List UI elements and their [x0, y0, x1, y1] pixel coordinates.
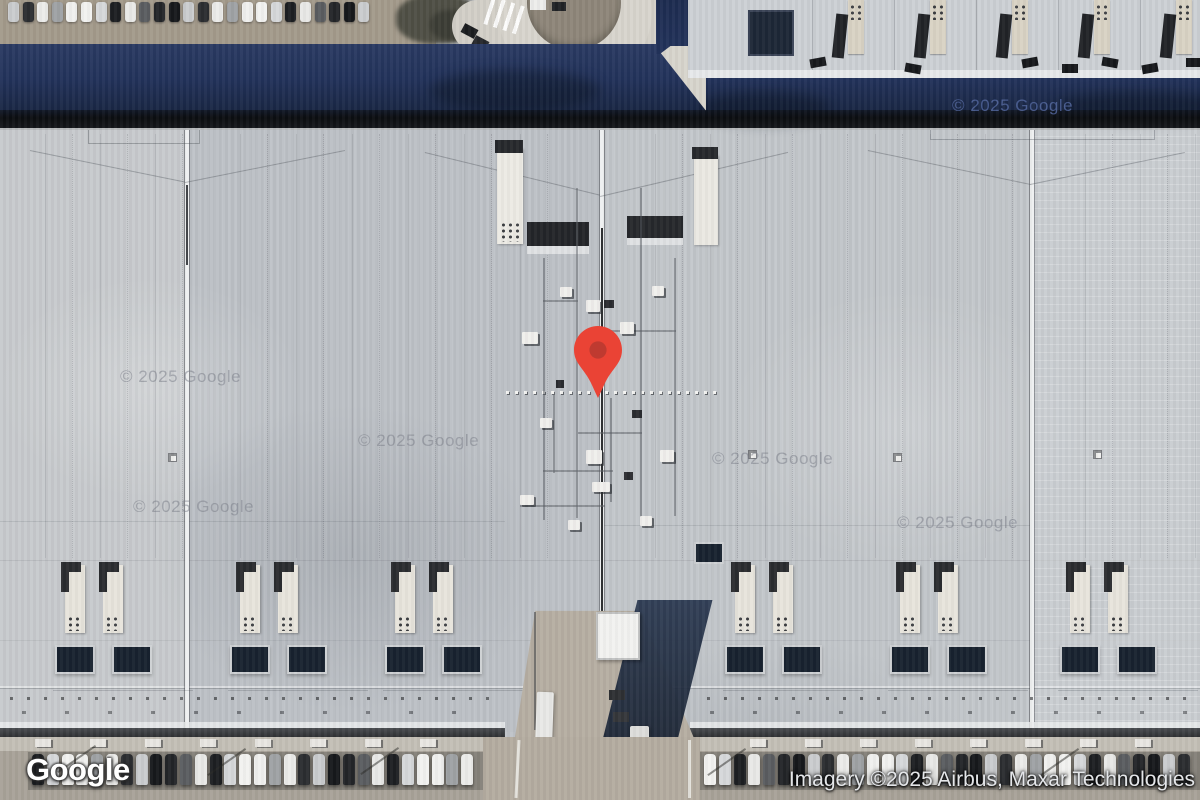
roof-speck [163, 697, 166, 700]
roof-detail [601, 228, 603, 624]
roof-detail [627, 238, 683, 245]
parked-car [110, 2, 121, 22]
roof-seam-dotted [1112, 134, 1113, 558]
vent-grate [1177, 4, 1191, 20]
parked-car [96, 2, 107, 22]
roof-dot [632, 391, 635, 394]
roof-dot [668, 391, 671, 394]
parked-car [242, 2, 253, 22]
vent-grate [1072, 616, 1088, 631]
roof-detail [820, 134, 821, 558]
parked-truck [1062, 64, 1078, 73]
roof-detail [296, 134, 297, 558]
roof-detail [543, 300, 578, 302]
roof-dot [551, 391, 554, 394]
roof-speck [1054, 711, 1058, 714]
roof-seam-dotted [792, 134, 793, 558]
roof-dot [533, 391, 536, 394]
roof-dot [659, 391, 662, 394]
roof-speck [1140, 711, 1144, 714]
roof-seam-dotted [547, 134, 548, 558]
vent-cap [495, 140, 523, 153]
vent-grate [940, 616, 956, 631]
vent-cap [61, 562, 69, 592]
parked-car [446, 754, 458, 785]
walkway-fixture [1025, 739, 1041, 747]
skylight-panel [694, 542, 724, 564]
parked-car [154, 2, 165, 22]
vent-grate [1095, 4, 1109, 20]
roof-seam-dotted [127, 134, 128, 558]
rooftop-equipment [586, 450, 602, 464]
vehicle [613, 712, 629, 722]
roof-detail [894, 0, 895, 70]
roof-speck [452, 697, 455, 700]
parked-car [343, 754, 355, 785]
vent-cap [769, 562, 777, 592]
roof-speck [1097, 711, 1101, 714]
roof-detail [632, 410, 642, 418]
roof-hatch [1093, 450, 1102, 459]
parked-car [358, 2, 369, 22]
vent-cap [429, 562, 437, 592]
roof-speck [237, 711, 241, 714]
parked-car [23, 2, 34, 22]
google-logo[interactable]: Google [26, 752, 130, 788]
roof-dot [686, 391, 689, 394]
parked-car [227, 2, 238, 22]
roof-dot [677, 391, 680, 394]
roof-detail [655, 134, 656, 558]
roof-detail [155, 134, 156, 558]
walkway-fixture [420, 739, 436, 747]
roof-detail [765, 134, 766, 558]
parked-truck [1186, 58, 1200, 67]
roof-detail [875, 134, 876, 558]
roof-seam-dotted [1012, 134, 1013, 558]
vent-grate [105, 616, 121, 631]
roof-speck [860, 697, 863, 700]
roof-detail [1058, 0, 1059, 70]
map-pin-icon[interactable] [574, 326, 622, 398]
vent-cap [1066, 562, 1074, 592]
roof-speck [61, 697, 64, 700]
parked-car [169, 2, 180, 22]
roof-speck [401, 697, 404, 700]
roof-dot [713, 391, 716, 394]
parked-car [139, 2, 150, 22]
roof-detail [976, 0, 977, 70]
roof-speck [418, 697, 421, 700]
vent-grate [397, 616, 413, 631]
roof-speck [409, 711, 413, 714]
roof-speck [112, 697, 115, 700]
parked-car [387, 754, 399, 785]
roof-speck [1030, 697, 1033, 700]
roof-dot [623, 391, 626, 394]
roof-seam-dotted [267, 134, 268, 558]
roof-detail [600, 525, 1031, 526]
roof-detail [610, 398, 612, 502]
parked-car [269, 754, 281, 785]
walkway-fixture [1080, 739, 1096, 747]
roof-detail [383, 690, 523, 691]
vent-cap [391, 562, 399, 592]
skylight-panel [287, 645, 327, 674]
roof-seam-dotted [491, 134, 492, 558]
roof-speck [925, 711, 929, 714]
parked-car [198, 2, 209, 22]
parked-car [81, 2, 92, 22]
roof-speck [108, 711, 112, 714]
roof-detail [527, 246, 589, 254]
roof-speck [968, 711, 972, 714]
roof-detail [464, 134, 465, 558]
satellite-imagery-layer: © 2025 Google© 2025 Google© 2025 Google©… [0, 0, 1200, 800]
roof-dot [560, 391, 563, 394]
vehicle [609, 690, 625, 700]
skylight-panel [1117, 645, 1157, 674]
roof-seam-dotted [847, 134, 848, 558]
roof-speck [979, 697, 982, 700]
roof-seam-dotted [957, 134, 958, 558]
walkway-fixture [145, 739, 161, 747]
parked-car [461, 754, 473, 785]
roof-speck [1013, 697, 1016, 700]
skylight-panel [725, 645, 765, 674]
roof-speck [280, 711, 284, 714]
roof-seam-dotted [737, 134, 738, 558]
roof-speck [843, 697, 846, 700]
skylight-panel [55, 645, 95, 674]
roof-speck [996, 697, 999, 700]
vent-cap [934, 562, 942, 592]
roof-detail [408, 134, 409, 558]
roof-dot [650, 391, 653, 394]
parked-car [432, 754, 444, 785]
roof-speck [724, 697, 727, 700]
vent-cap [236, 562, 244, 592]
roof-dot [524, 391, 527, 394]
walkway-fixture [1135, 739, 1151, 747]
rooftop-equipment [592, 482, 610, 492]
vent-grate [67, 616, 83, 631]
roof-detail [624, 472, 633, 480]
roof-dot [695, 391, 698, 394]
roof-speck [486, 697, 489, 700]
roof-seam-dotted [682, 134, 683, 558]
rooftop-opening [748, 10, 794, 56]
roof-seam-dotted [379, 134, 380, 558]
roof-seam-dotted [902, 134, 903, 558]
parked-car [284, 754, 296, 785]
vent-grate [500, 222, 520, 242]
walkway-fixture [970, 739, 986, 747]
roof-speck [44, 697, 47, 700]
skylight-panel [442, 645, 482, 674]
parked-car [298, 754, 310, 785]
roof-speck [1183, 711, 1187, 714]
parked-car [271, 2, 282, 22]
roof-speck [384, 697, 387, 700]
parked-car [136, 754, 148, 785]
roof-speck [962, 697, 965, 700]
roof-detail [1195, 134, 1196, 558]
vent-grate [737, 616, 753, 631]
parked-car [52, 2, 63, 22]
parked-car [300, 2, 311, 22]
roof-detail [228, 690, 368, 691]
roof-detail [186, 185, 188, 265]
vehicle [552, 2, 566, 11]
roof-speck [248, 697, 251, 700]
dock-trailer [527, 222, 589, 246]
roof-speck [1081, 697, 1084, 700]
vent-cap [731, 562, 739, 592]
roof-speck [78, 697, 81, 700]
roof-seam-dotted [1167, 134, 1168, 558]
roof-speck [928, 697, 931, 700]
roof-speck [10, 697, 13, 700]
roof-detail [985, 134, 986, 558]
roof-seam-dotted [182, 134, 183, 558]
roof-detail [0, 110, 1200, 130]
skylight-panel [112, 645, 152, 674]
parked-car [285, 2, 296, 22]
roof-speck [792, 697, 795, 700]
roof-detail [556, 380, 564, 388]
parked-car [402, 754, 414, 785]
vent-grate [775, 616, 791, 631]
skylight-panel [385, 645, 425, 674]
roof-speck [809, 697, 812, 700]
roof-speck [796, 711, 800, 714]
roof-speck [197, 697, 200, 700]
roof-speck [333, 697, 336, 700]
parked-car [328, 754, 340, 785]
skylight-panel [890, 645, 930, 674]
rooftop-vent [694, 155, 718, 245]
parked-car [734, 754, 746, 785]
parked-car [212, 2, 223, 22]
roof-detail [1085, 134, 1086, 558]
roof-speck [1183, 697, 1186, 700]
roof-detail [0, 128, 1200, 130]
roof-speck [316, 697, 319, 700]
roof-speck [435, 697, 438, 700]
parked-car [8, 2, 19, 22]
roof-speck [367, 697, 370, 700]
parked-car [180, 754, 192, 785]
roof-speck [1064, 697, 1067, 700]
skylight-panel [782, 645, 822, 674]
vent-grate [1013, 4, 1027, 20]
roof-speck [214, 697, 217, 700]
walkway-fixture [860, 739, 876, 747]
roof-speck [95, 697, 98, 700]
roof-speck [775, 697, 778, 700]
walkway-fixture [255, 739, 271, 747]
roof-detail [543, 258, 545, 520]
rooftop-equipment [652, 286, 664, 296]
walkway-fixture [365, 739, 381, 747]
roof-speck [146, 697, 149, 700]
dock-trailer [627, 216, 683, 238]
walkway-fixture [35, 739, 51, 747]
parked-car [315, 2, 326, 22]
parked-car [313, 754, 325, 785]
parked-car [329, 2, 340, 22]
roof-speck [323, 711, 327, 714]
roof-speck [877, 697, 880, 700]
roof-speck [22, 711, 26, 714]
parked-car [150, 754, 162, 785]
rooftop-equipment [540, 418, 552, 428]
imagery-attribution: Imagery ©2025 Airbus, Maxar Technologies [789, 768, 1195, 792]
roof-speck [1047, 697, 1050, 700]
roof-detail [45, 134, 46, 558]
roof-dot [515, 391, 518, 394]
roof-detail [1031, 128, 1200, 732]
vent-cap [692, 147, 718, 159]
roof-detail [688, 70, 1200, 78]
roof-speck [1098, 697, 1101, 700]
roof-speck [151, 711, 155, 714]
roof-speck [366, 711, 370, 714]
parked-car [165, 754, 177, 785]
roof-speck [894, 697, 897, 700]
vent-grate [902, 616, 918, 631]
roof-detail [553, 395, 555, 473]
parked-car [195, 754, 207, 785]
roof-dot [704, 391, 707, 394]
walkway-fixture [310, 739, 326, 747]
parked-car [125, 2, 136, 22]
vent-grate [849, 4, 863, 20]
rooftop-equipment [520, 495, 534, 505]
roof-speck [129, 697, 132, 700]
roof-detail [0, 128, 186, 732]
roof-parapet-notch [88, 130, 200, 144]
skylight-panel [947, 645, 987, 674]
roof-seam-dotted [72, 134, 73, 558]
skylight-panel [230, 645, 270, 674]
roof-speck [265, 697, 268, 700]
roof-speck [452, 711, 456, 714]
walkway-fixture [915, 739, 931, 747]
roof-detail [640, 188, 642, 518]
roof-speck [945, 697, 948, 700]
roof-speck [911, 697, 914, 700]
parked-car [256, 2, 267, 22]
roof-detail [0, 521, 505, 522]
roof-detail [100, 134, 101, 558]
roof-seam-dotted [435, 134, 436, 558]
roof-speck [27, 697, 30, 700]
roof-dot [569, 391, 572, 394]
roof-hatch [748, 450, 757, 459]
roof-hatch [893, 453, 902, 462]
parked-car [344, 2, 355, 22]
roof-speck [882, 711, 886, 714]
roof-speck [469, 697, 472, 700]
roof-detail [700, 737, 1200, 751]
rooftop-equipment [522, 332, 538, 344]
parked-car [748, 754, 760, 785]
parked-car [37, 2, 48, 22]
roof-speck [753, 711, 757, 714]
roof-detail [723, 690, 863, 691]
roof-detail [1058, 690, 1198, 691]
roof-speck [1132, 697, 1135, 700]
vehicle [530, 0, 546, 10]
roof-speck [282, 697, 285, 700]
parked-car [239, 754, 251, 785]
roof-speck [707, 697, 710, 700]
rooftop-equipment [586, 300, 600, 312]
roof-detail [604, 300, 614, 308]
rooftop-equipment [660, 450, 674, 462]
skylight-panel [1060, 645, 1100, 674]
roof-speck [231, 697, 234, 700]
roof-speck [65, 711, 69, 714]
roof-detail [674, 258, 676, 516]
roof-detail [520, 505, 605, 507]
walkway-fixture [200, 739, 216, 747]
roof-speck [758, 697, 761, 700]
parked-car [183, 2, 194, 22]
parked-car [417, 754, 429, 785]
rooftop-equipment [560, 287, 572, 297]
roof-speck [180, 697, 183, 700]
walkway-fixture [750, 739, 766, 747]
roof-hatch [168, 453, 177, 462]
roof-dot [506, 391, 509, 394]
parked-car [254, 754, 266, 785]
roof-speck [1011, 711, 1015, 714]
roof-detail [1140, 134, 1141, 558]
roof-detail [930, 134, 931, 558]
roof-speck [299, 697, 302, 700]
vent-cap [896, 562, 904, 592]
roof-expansion-joint [1030, 130, 1034, 732]
roof-speck [710, 711, 714, 714]
walkway-fixture [805, 739, 821, 747]
rooftop-equipment [640, 516, 652, 526]
roof-speck [350, 697, 353, 700]
roof-speck [839, 711, 843, 714]
roof-speck [741, 697, 744, 700]
vent-cap [274, 562, 282, 592]
parked-car [66, 2, 77, 22]
vent-grate [242, 616, 258, 631]
roof-speck [1149, 697, 1152, 700]
satellite-map[interactable]: © 2025 Google© 2025 Google© 2025 Google©… [0, 0, 1200, 800]
vent-cap [1104, 562, 1112, 592]
roof-detail [53, 690, 193, 691]
rooftop-equipment [568, 520, 580, 530]
roof-detail [352, 134, 353, 558]
vent-grate [931, 4, 945, 20]
roof-speck [1115, 697, 1118, 700]
roof-detail [1140, 0, 1141, 70]
roof-seam-dotted [323, 134, 324, 558]
vent-grate [1110, 616, 1126, 631]
parked-car [763, 754, 775, 785]
vent-grate [435, 616, 451, 631]
roof-detail [240, 134, 241, 558]
courtyard-building [596, 612, 640, 660]
